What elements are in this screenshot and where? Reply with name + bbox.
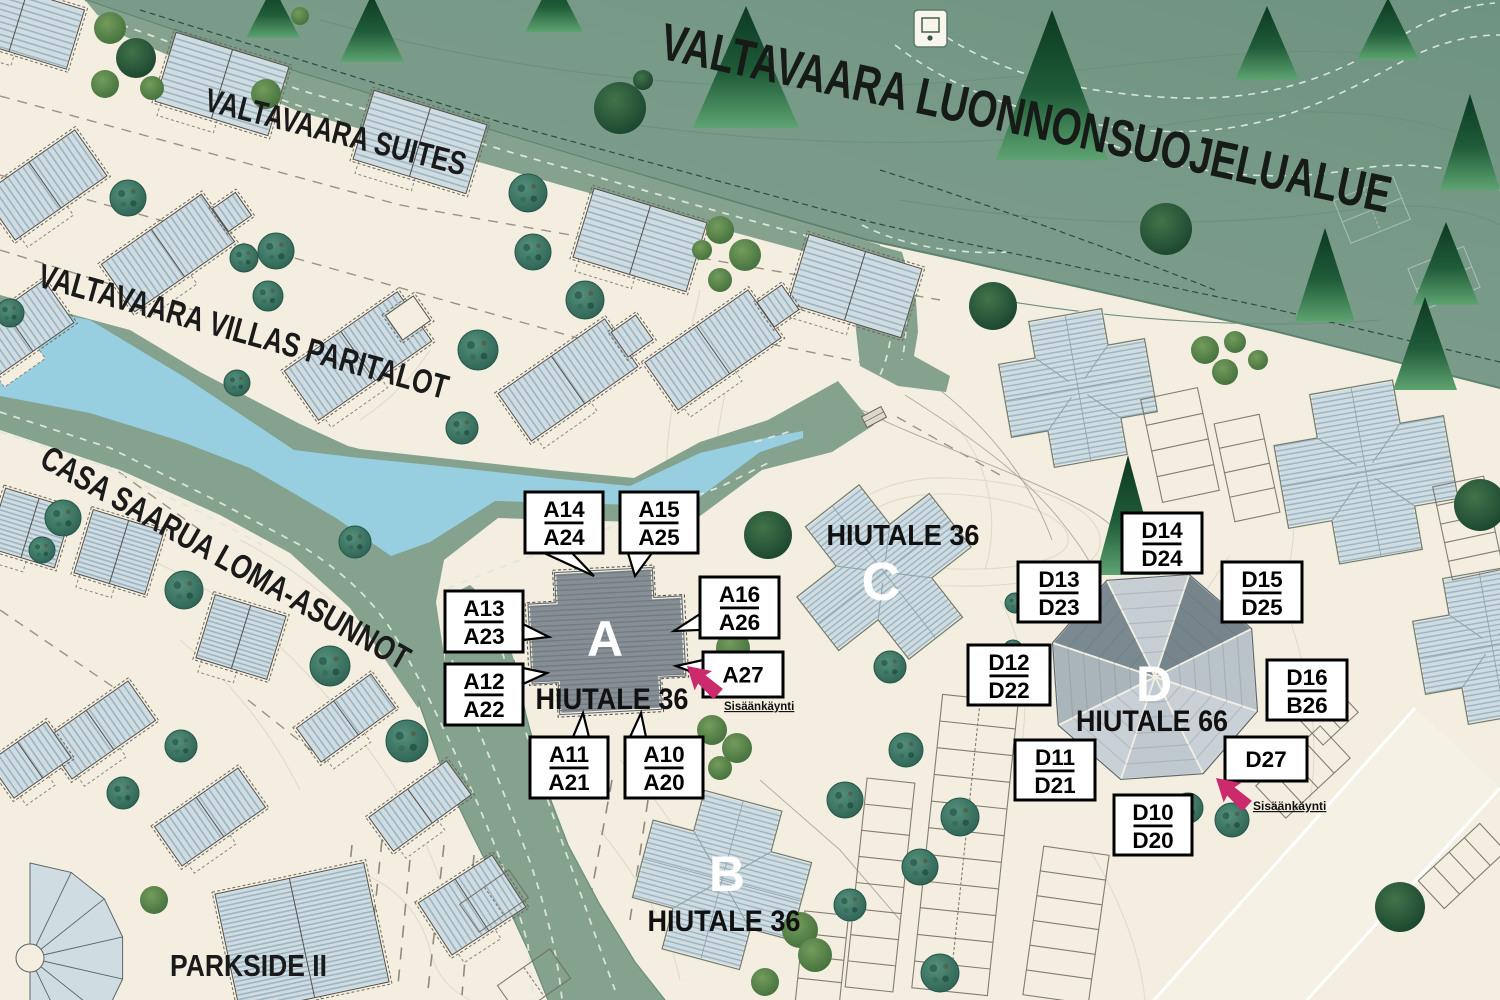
svg-text:HIUTALE 66: HIUTALE 66 xyxy=(1076,705,1228,738)
svg-text:D21: D21 xyxy=(1034,773,1075,798)
svg-text:A20: A20 xyxy=(643,770,684,795)
svg-text:HIUTALE 36: HIUTALE 36 xyxy=(648,905,801,938)
svg-text:A10: A10 xyxy=(643,742,684,767)
svg-text:A26: A26 xyxy=(719,610,760,635)
svg-text:PARKSIDE II: PARKSIDE II xyxy=(170,948,327,983)
svg-text:A: A xyxy=(587,611,623,667)
svg-text:C: C xyxy=(862,552,901,612)
svg-text:D24: D24 xyxy=(1141,546,1183,571)
svg-text:A12: A12 xyxy=(463,669,504,694)
svg-text:D16: D16 xyxy=(1286,665,1327,690)
svg-text:A14: A14 xyxy=(543,497,585,522)
svg-text:D15: D15 xyxy=(1241,567,1282,592)
svg-text:D25: D25 xyxy=(1241,595,1282,620)
svg-text:A21: A21 xyxy=(548,770,589,795)
svg-text:D27: D27 xyxy=(1245,747,1286,772)
svg-text:A15: A15 xyxy=(638,497,679,522)
svg-text:B: B xyxy=(709,846,745,902)
svg-text:Sisäänkäynti: Sisäänkäynti xyxy=(724,701,794,713)
svg-text:D12: D12 xyxy=(988,650,1029,675)
svg-text:A25: A25 xyxy=(638,525,679,550)
svg-text:A13: A13 xyxy=(463,596,504,621)
svg-text:A23: A23 xyxy=(463,624,504,649)
svg-text:A22: A22 xyxy=(463,697,504,722)
svg-text:A24: A24 xyxy=(543,525,585,550)
svg-text:A16: A16 xyxy=(719,582,760,607)
svg-text:Sisäänkäynti: Sisäänkäynti xyxy=(1253,799,1326,813)
svg-text:D20: D20 xyxy=(1132,828,1173,853)
svg-text:A27: A27 xyxy=(722,663,763,688)
svg-text:D11: D11 xyxy=(1035,745,1075,770)
svg-text:D: D xyxy=(1136,656,1172,712)
svg-text:D22: D22 xyxy=(988,678,1029,703)
svg-text:D13: D13 xyxy=(1038,567,1079,592)
svg-text:HIUTALE 36: HIUTALE 36 xyxy=(536,683,689,716)
svg-text:HIUTALE 36: HIUTALE 36 xyxy=(827,520,980,552)
svg-text:D10: D10 xyxy=(1132,800,1173,825)
svg-text:B26: B26 xyxy=(1286,693,1327,718)
svg-text:A11: A11 xyxy=(549,742,589,767)
svg-text:D14: D14 xyxy=(1141,518,1183,543)
svg-text:D23: D23 xyxy=(1038,595,1079,620)
